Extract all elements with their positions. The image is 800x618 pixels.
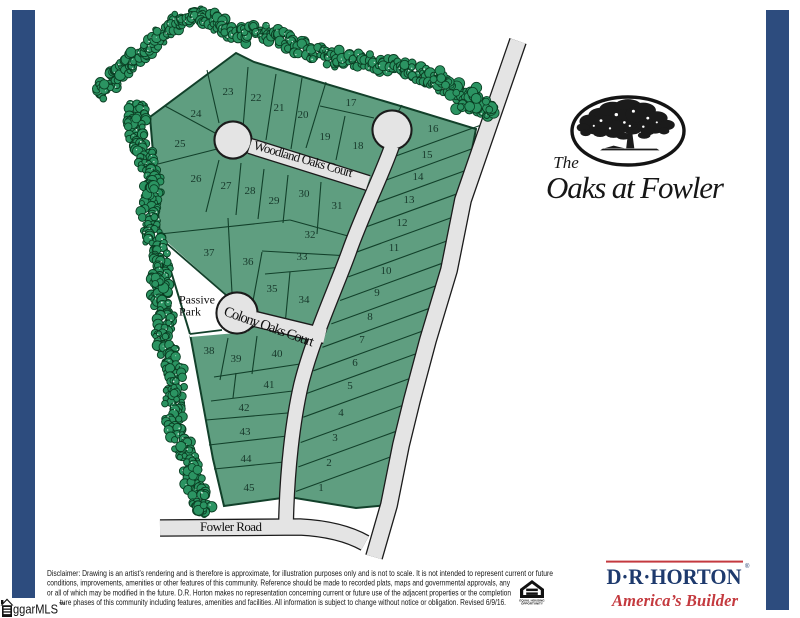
svg-text:11: 11 — [389, 242, 400, 254]
svg-text:20: 20 — [298, 109, 310, 121]
svg-text:29: 29 — [269, 195, 281, 207]
svg-text:23: 23 — [223, 86, 235, 98]
svg-text:17: 17 — [346, 97, 358, 109]
svg-text:44: 44 — [241, 453, 253, 465]
svg-text:43: 43 — [240, 426, 252, 438]
svg-text:34: 34 — [299, 294, 311, 306]
svg-text:42: 42 — [239, 402, 250, 414]
svg-text:19: 19 — [320, 131, 332, 143]
svg-text:25: 25 — [175, 138, 187, 150]
svg-text:26: 26 — [191, 173, 203, 185]
svg-text:16: 16 — [428, 123, 440, 135]
svg-text:America’s Builder: America’s Builder — [611, 591, 739, 610]
svg-text:Fowler Road: Fowler Road — [200, 519, 263, 534]
svg-text:14: 14 — [413, 171, 425, 183]
svg-text:31: 31 — [332, 200, 343, 212]
svg-text:7: 7 — [359, 334, 365, 346]
svg-text:®: ® — [745, 563, 750, 570]
svg-text:8: 8 — [367, 311, 373, 323]
svg-text:15: 15 — [422, 149, 434, 161]
svg-text:Disclaimer: Drawing is an arti: Disclaimer: Drawing is an artist’s rende… — [47, 569, 553, 578]
svg-text:10: 10 — [381, 265, 393, 277]
svg-text:32: 32 — [305, 229, 316, 241]
svg-text:13: 13 — [404, 194, 416, 206]
svg-text:9: 9 — [374, 287, 380, 299]
svg-text:conditions, improvements, amen: conditions, improvements, amenities or o… — [47, 579, 511, 588]
svg-text:or all of which may be modifie: or all of which may be modified in the f… — [47, 588, 511, 597]
svg-text:ggarMLS: ggarMLS — [13, 602, 58, 617]
svg-text:3: 3 — [332, 432, 338, 444]
svg-text:D·R·HORTON: D·R·HORTON — [607, 564, 742, 589]
svg-text:6: 6 — [352, 357, 358, 369]
svg-text:36: 36 — [243, 256, 255, 268]
svg-text:Park: Park — [179, 305, 201, 319]
svg-text:21: 21 — [274, 102, 285, 114]
svg-text:40: 40 — [272, 348, 284, 360]
svg-text:4: 4 — [338, 407, 344, 419]
svg-text:28: 28 — [245, 185, 257, 197]
svg-text:5: 5 — [347, 380, 353, 392]
svg-text:OPPORTUNITY: OPPORTUNITY — [521, 602, 543, 606]
svg-text:1: 1 — [318, 482, 324, 494]
svg-text:2: 2 — [326, 457, 332, 469]
svg-text:33: 33 — [297, 251, 309, 263]
svg-text:12: 12 — [397, 217, 408, 229]
svg-text:27: 27 — [221, 180, 233, 192]
svg-text:22: 22 — [251, 92, 262, 104]
svg-text:45: 45 — [244, 482, 256, 494]
svg-text:18: 18 — [353, 140, 365, 152]
svg-text:30: 30 — [299, 188, 311, 200]
svg-text:38: 38 — [204, 345, 216, 357]
svg-text:ture phases of this community: ture phases of this community including … — [60, 598, 506, 607]
svg-text:35: 35 — [267, 283, 279, 295]
svg-text:41: 41 — [264, 379, 275, 391]
svg-text:24: 24 — [191, 108, 203, 120]
svg-text:39: 39 — [231, 353, 243, 365]
svg-text:Oaks at Fowler: Oaks at Fowler — [546, 170, 725, 205]
svg-text:37: 37 — [204, 247, 216, 259]
